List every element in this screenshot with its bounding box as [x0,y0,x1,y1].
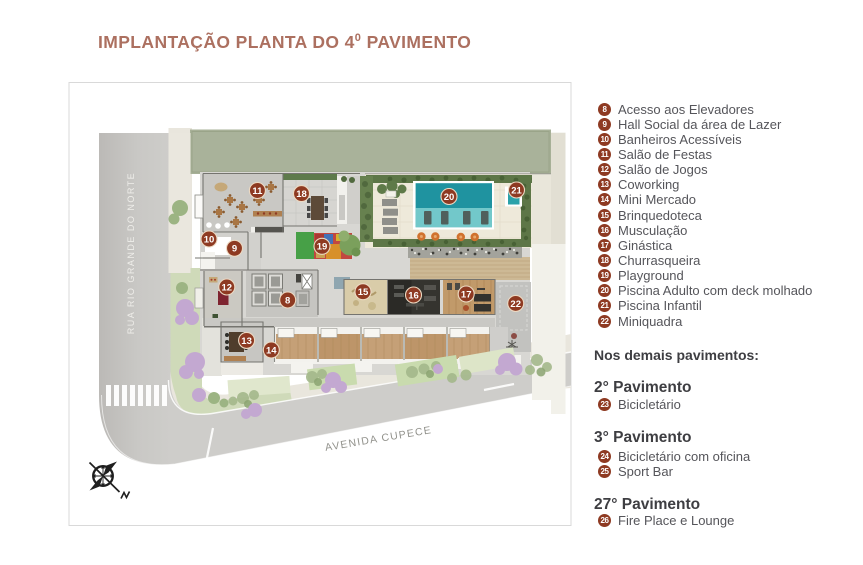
svg-text:15: 15 [358,287,369,298]
svg-text:8: 8 [285,295,290,306]
svg-text:17: 17 [461,289,472,300]
svg-text:RUA RIO GRANDE DO NORTE: RUA RIO GRANDE DO NORTE [126,172,136,334]
svg-text:11: 11 [252,186,263,197]
svg-text:18: 18 [296,189,307,200]
svg-text:16: 16 [408,290,419,301]
svg-text:19: 19 [317,242,328,253]
svg-text:22: 22 [510,299,521,310]
svg-text:21: 21 [511,185,522,196]
svg-text:10: 10 [204,234,215,245]
svg-text:12: 12 [222,282,233,293]
svg-text:20: 20 [444,192,455,203]
svg-text:13: 13 [241,336,252,347]
svg-text:9: 9 [232,244,237,255]
svg-text:14: 14 [266,345,277,356]
